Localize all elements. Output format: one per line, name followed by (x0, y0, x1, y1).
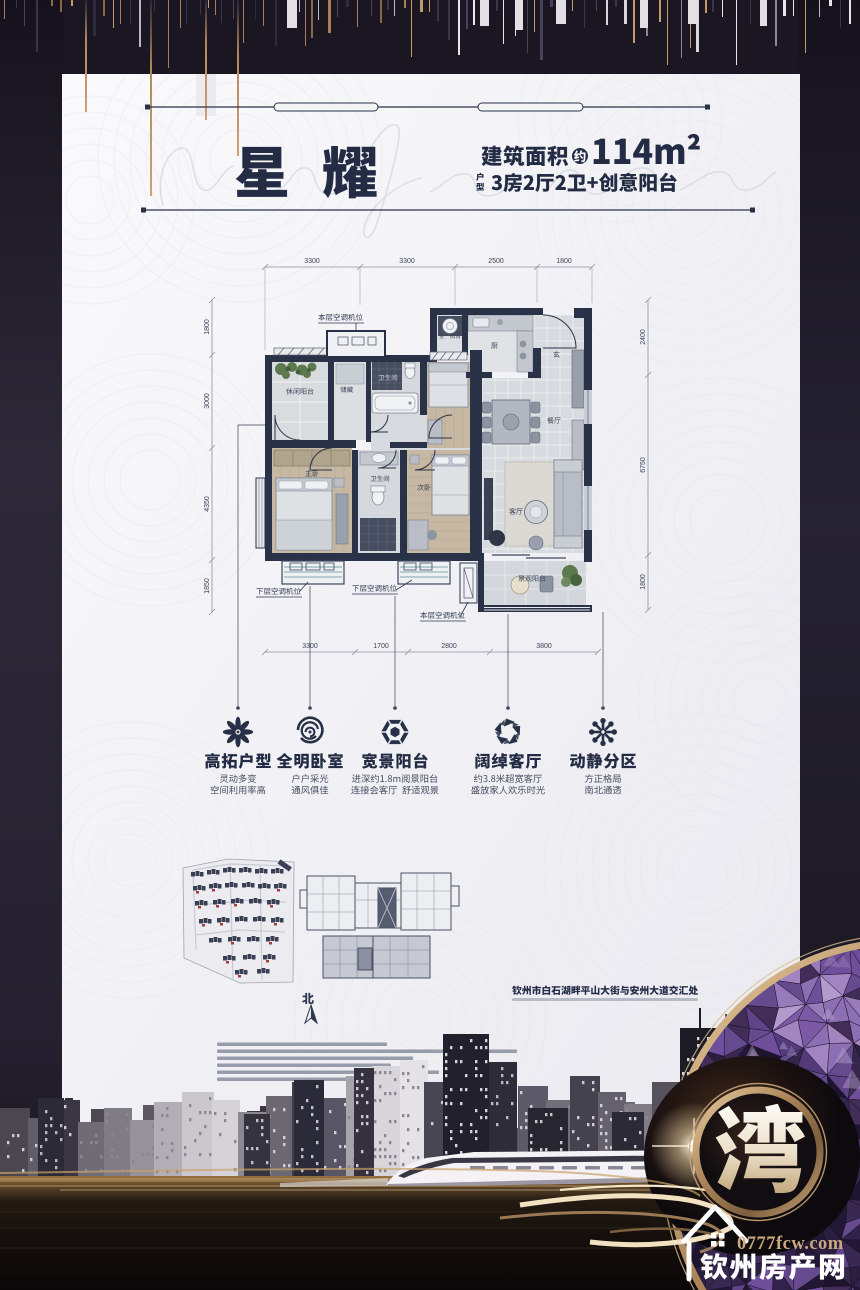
svg-text:1800: 1800 (204, 319, 211, 335)
svg-text:3000: 3000 (204, 393, 211, 409)
svg-text:0777fcw.com: 0777fcw.com (737, 1234, 844, 1254)
svg-text:3300: 3300 (399, 258, 415, 265)
svg-text:4350: 4350 (204, 496, 211, 512)
svg-text:1800: 1800 (556, 258, 572, 265)
svg-text:2800: 2800 (441, 643, 457, 650)
svg-text:2500: 2500 (488, 258, 504, 265)
svg-text:1850: 1850 (204, 578, 211, 594)
svg-text:3800: 3800 (536, 643, 552, 650)
svg-text:6750: 6750 (640, 457, 647, 473)
svg-text:1700: 1700 (373, 643, 389, 650)
svg-text:1800: 1800 (640, 574, 647, 590)
svg-text:2400: 2400 (640, 329, 647, 345)
svg-text:3300: 3300 (304, 258, 320, 265)
